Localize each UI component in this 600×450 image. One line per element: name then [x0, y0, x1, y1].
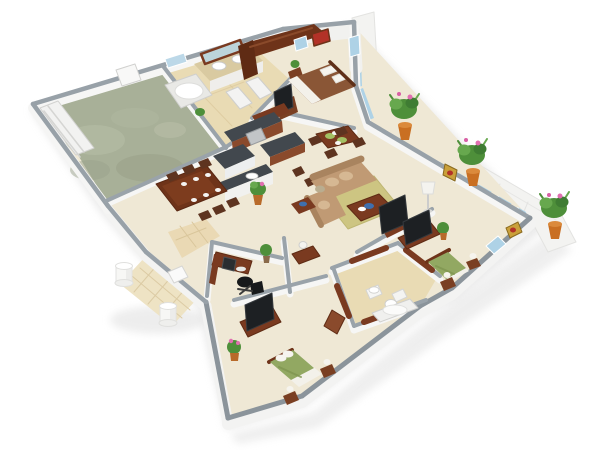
plant-flower [464, 138, 468, 142]
table-lamp [470, 253, 477, 259]
plant-pot-rim [398, 122, 412, 128]
plant-flower [558, 194, 563, 199]
pillar-base [159, 320, 177, 327]
floor-mottle [154, 122, 186, 138]
place-setting [203, 193, 209, 197]
wall-art-inner [447, 171, 453, 176]
plant-flower [547, 193, 551, 197]
place-setting [193, 177, 199, 181]
plant-pot-rim [466, 168, 480, 174]
potted-plant [540, 198, 553, 209]
pillar-base [115, 280, 133, 287]
pillar-top [116, 263, 133, 270]
sofa-cushion [339, 172, 353, 181]
table-lamp [287, 386, 294, 392]
pillow [283, 351, 294, 358]
scene [30, 12, 576, 444]
newspaper [246, 173, 258, 179]
plant-flower [397, 92, 401, 96]
plant-flower [236, 341, 240, 345]
master-window [349, 35, 360, 57]
sofa-pillow [315, 186, 325, 193]
office-plant [260, 244, 272, 256]
bar-plant-flower [260, 182, 264, 186]
place-setting [181, 182, 187, 186]
floorplan-3d-render [0, 0, 600, 450]
potted-plant [390, 99, 403, 110]
office-plant-pot [263, 256, 270, 263]
bed2-plant-pot [440, 233, 447, 240]
plant-pot-rim [548, 221, 562, 227]
monitor [222, 257, 236, 271]
nightstand-plant [291, 60, 300, 68]
pillar-top [160, 303, 177, 310]
bathtub-basin [383, 305, 407, 315]
sofa-cushion [318, 201, 330, 210]
bed2-plant [437, 222, 449, 234]
bed2-art-inner [510, 228, 516, 233]
table-lamp [324, 359, 331, 365]
place-setting [215, 188, 221, 192]
bar-plant [250, 182, 258, 189]
plant-flower [408, 95, 413, 100]
plant-pot [230, 353, 239, 361]
book-blue [299, 202, 307, 207]
tub-basin [175, 83, 203, 99]
floor-lamp-shade [421, 182, 435, 194]
sink-basin [369, 287, 379, 293]
place-setting [191, 198, 197, 202]
table-lamp [444, 272, 451, 278]
sink [212, 62, 226, 70]
potted-plant [474, 144, 487, 155]
keyboard [236, 267, 246, 272]
paper [358, 207, 366, 211]
place-setting [205, 173, 211, 177]
sofa-cushion [325, 178, 339, 187]
plate [335, 141, 341, 145]
bath-plant [195, 108, 205, 116]
potted-plant [556, 197, 569, 208]
potted-plant [406, 98, 419, 109]
floorplan-page [0, 0, 600, 450]
floor-mottle [111, 108, 159, 128]
desk-lamp [299, 242, 307, 249]
potted-plant [458, 145, 471, 156]
plant-flower [229, 339, 233, 343]
plant-flower [476, 141, 481, 146]
